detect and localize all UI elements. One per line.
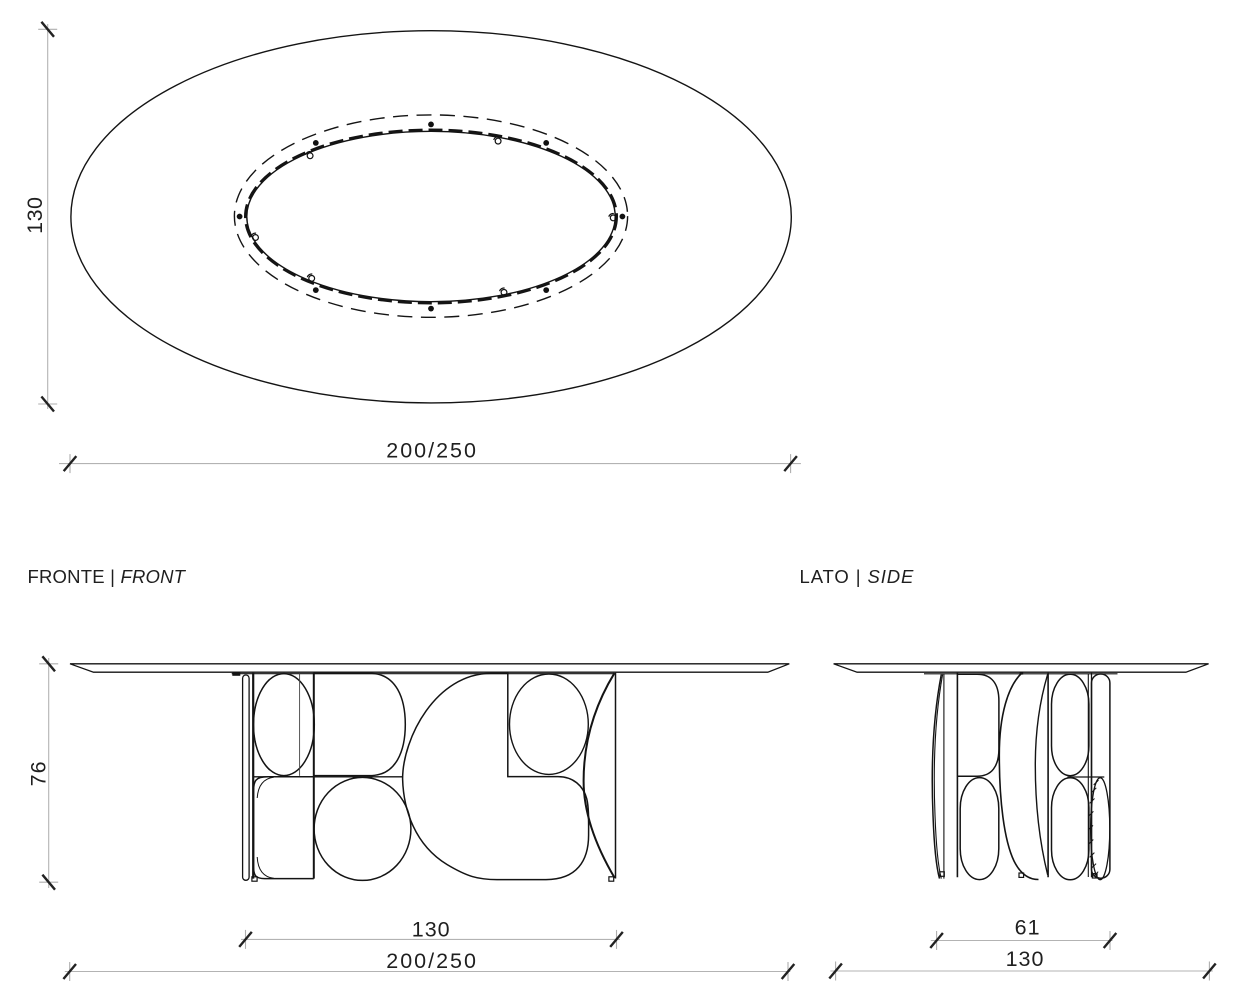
svg-text:130: 130: [23, 197, 47, 234]
svg-text:LATO | SIDE: LATO | SIDE: [800, 566, 915, 587]
svg-text:130: 130: [1006, 947, 1045, 971]
svg-text:130: 130: [412, 917, 451, 941]
svg-text:76: 76: [27, 760, 51, 786]
svg-text:61: 61: [1015, 916, 1041, 940]
svg-text:FRONTE | FRONT: FRONTE | FRONT: [28, 566, 187, 587]
svg-text:200/250: 200/250: [386, 949, 478, 973]
svg-text:200/250: 200/250: [386, 439, 478, 463]
